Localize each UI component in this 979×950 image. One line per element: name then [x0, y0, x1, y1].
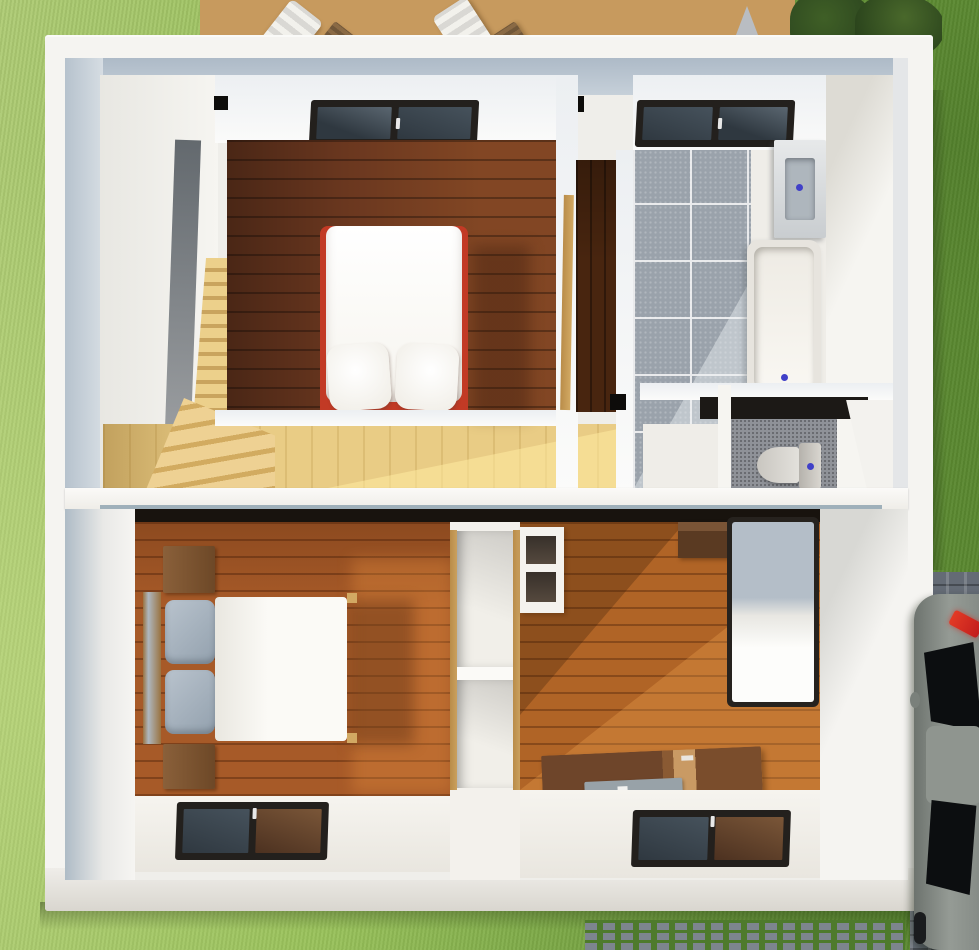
mattress — [732, 522, 814, 702]
wardrobe-shelf — [457, 667, 513, 680]
skylight-window-bathroom — [635, 100, 795, 147]
window-handle — [718, 118, 723, 129]
skylight-window-bedroom-left — [175, 802, 329, 860]
wardrobe-trim — [450, 530, 457, 790]
walk-in-closet-floor — [576, 160, 618, 412]
hall-floor — [643, 424, 718, 492]
wall-shelf — [678, 522, 732, 558]
desk-handle — [681, 755, 693, 761]
skylight-pane — [182, 809, 249, 853]
bed-shadow — [472, 245, 530, 420]
skylight-pane — [718, 107, 788, 140]
shelf-cubby — [526, 536, 556, 564]
upper-right-wall-edge — [893, 58, 908, 492]
floor-vent — [610, 394, 626, 410]
bed-shadow — [348, 600, 414, 745]
wardrobe-column — [450, 522, 520, 880]
bathtub-basin — [754, 247, 814, 389]
skylight-pane — [714, 817, 784, 860]
car-windshield — [924, 642, 979, 732]
floorplan-render — [0, 0, 979, 950]
duvet — [215, 597, 347, 741]
skylight-pane — [397, 107, 472, 139]
pillow — [394, 342, 459, 411]
toilet-bowl — [757, 447, 801, 483]
car-mirror — [910, 692, 920, 708]
lower-left-wall — [65, 509, 135, 880]
upper-left-wall — [65, 58, 103, 492]
master-bed — [320, 226, 468, 418]
window-handle — [252, 808, 256, 819]
car-roof — [926, 726, 979, 804]
skylight-window-bedroom-right — [631, 810, 791, 867]
wardrobe-shelf-opening — [457, 531, 513, 667]
window-handle — [710, 816, 714, 827]
faucet — [796, 184, 803, 191]
window-handle — [396, 118, 401, 129]
skylight-pane — [255, 809, 322, 853]
lower-right-wall — [820, 509, 908, 880]
bed-post — [347, 593, 357, 603]
shelf-unit — [520, 527, 564, 613]
bathtub — [747, 240, 821, 396]
nightstand — [163, 546, 215, 593]
toilet-tank — [799, 443, 821, 489]
bed-post — [347, 733, 357, 743]
pillow — [165, 600, 215, 664]
wall-shadow — [933, 90, 946, 570]
bathroom-sink — [774, 140, 826, 238]
wardrobe-shelf-opening — [457, 680, 513, 788]
skylight-pane — [638, 817, 708, 860]
headboard — [143, 592, 161, 744]
master-bedroom-south-wall — [215, 410, 565, 426]
car-wheel — [914, 912, 926, 944]
grass-paver-grid — [585, 920, 905, 950]
single-bed — [727, 517, 819, 707]
wardrobe-trim — [513, 530, 520, 790]
car — [914, 594, 979, 950]
roof-vent — [214, 96, 228, 110]
closet-east-wall — [616, 150, 634, 492]
flush-button — [807, 463, 814, 470]
bathtub-drain — [781, 374, 788, 381]
pillow — [165, 670, 215, 734]
pillow — [326, 342, 392, 412]
skylight-pane — [642, 107, 712, 140]
wc-west-wall — [718, 385, 731, 492]
nightstand — [163, 744, 215, 789]
skylight-pane — [316, 107, 391, 139]
shelf-cubby — [526, 572, 556, 602]
